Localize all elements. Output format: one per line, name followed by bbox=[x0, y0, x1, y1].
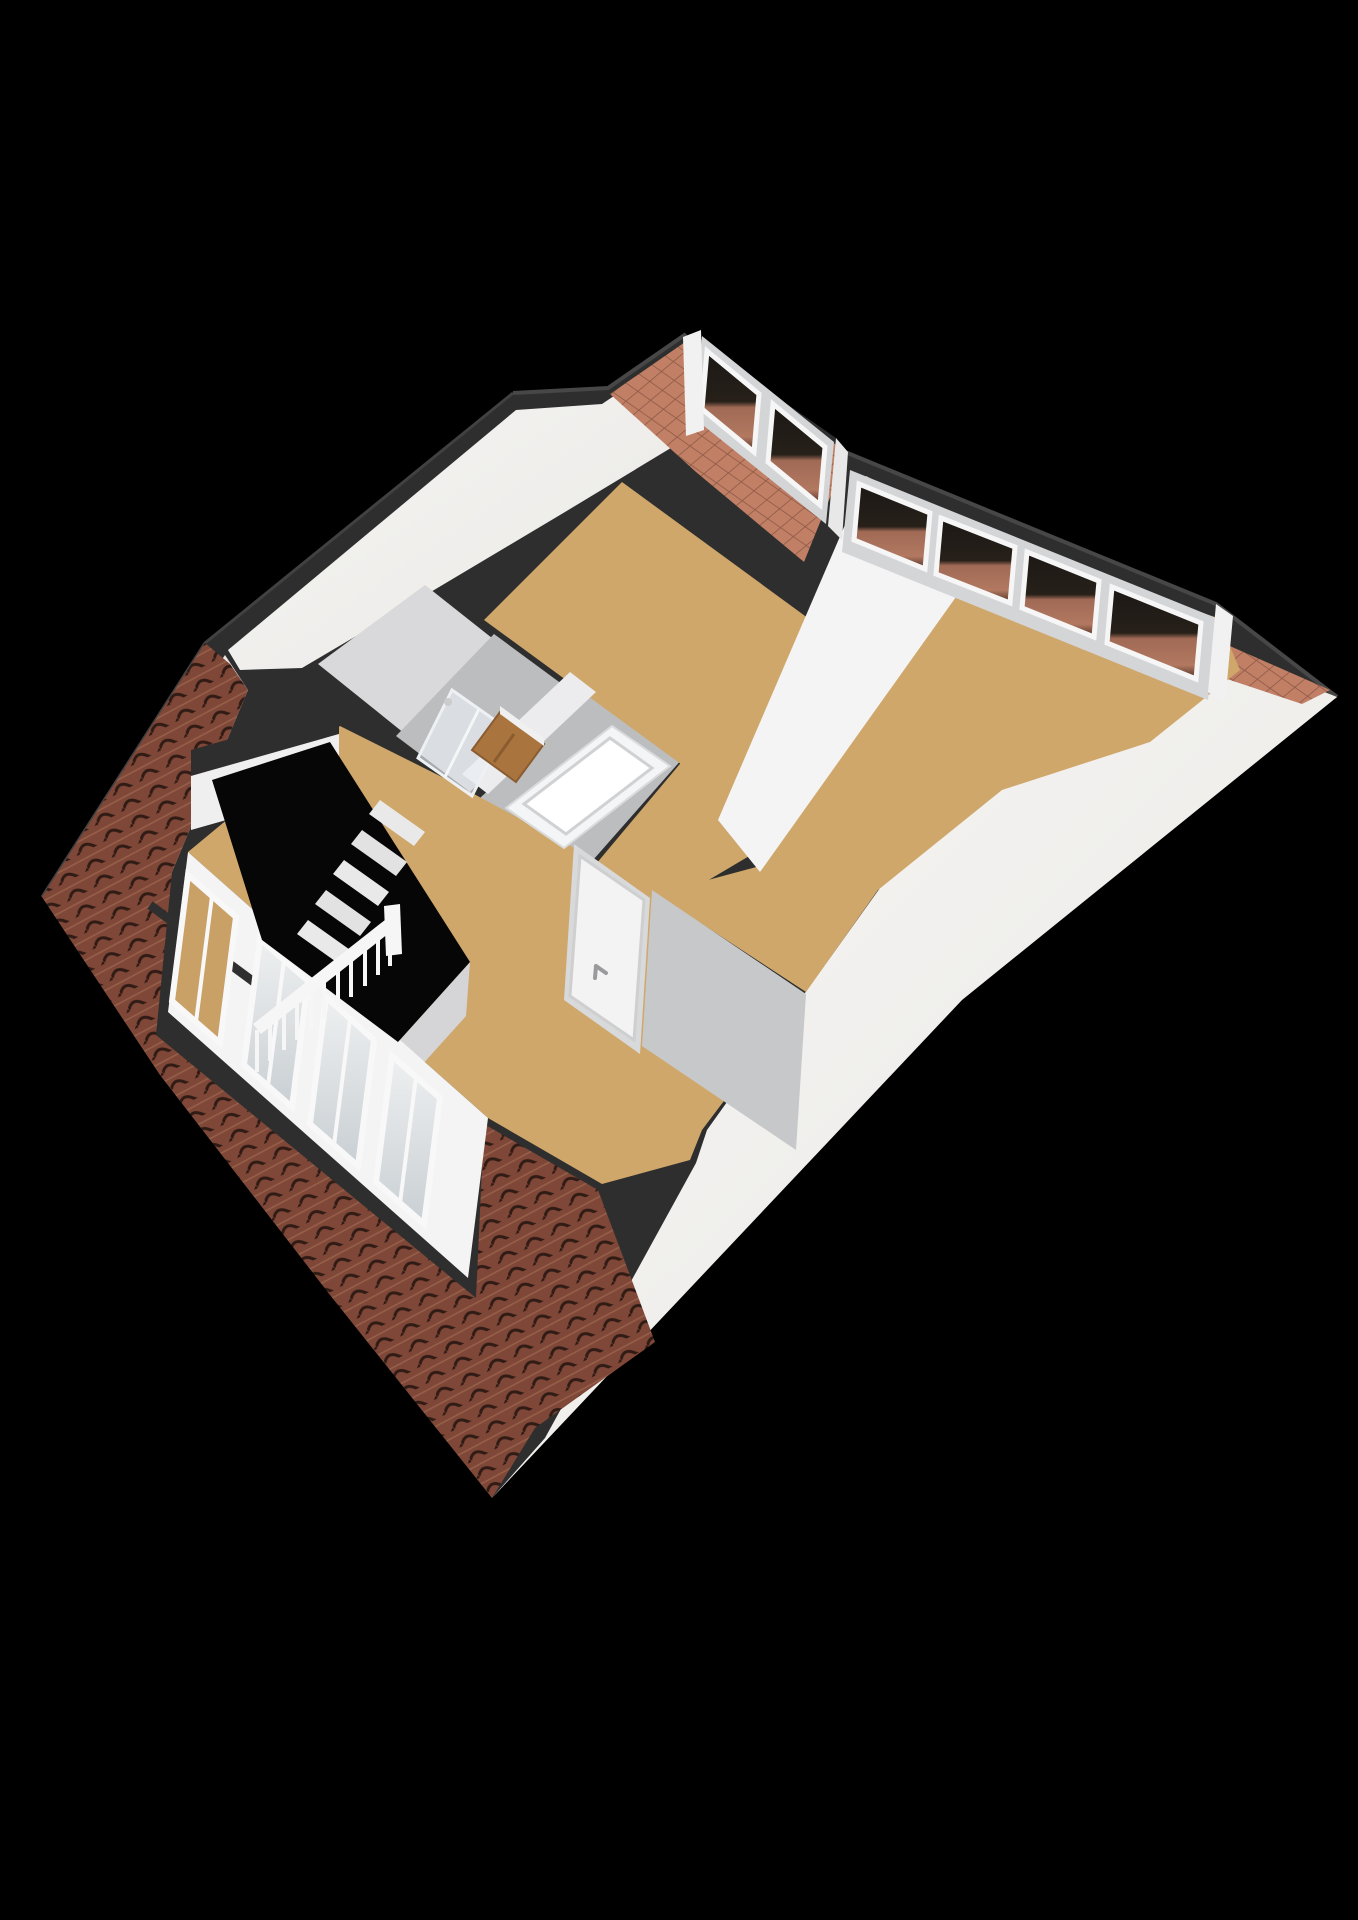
dormer1-left-jamb bbox=[683, 330, 704, 436]
railing-newel-post bbox=[384, 904, 402, 956]
shower-head bbox=[444, 698, 452, 706]
floorplan-canvas bbox=[0, 0, 1358, 1920]
floorplan-3d-render bbox=[0, 0, 1358, 1920]
